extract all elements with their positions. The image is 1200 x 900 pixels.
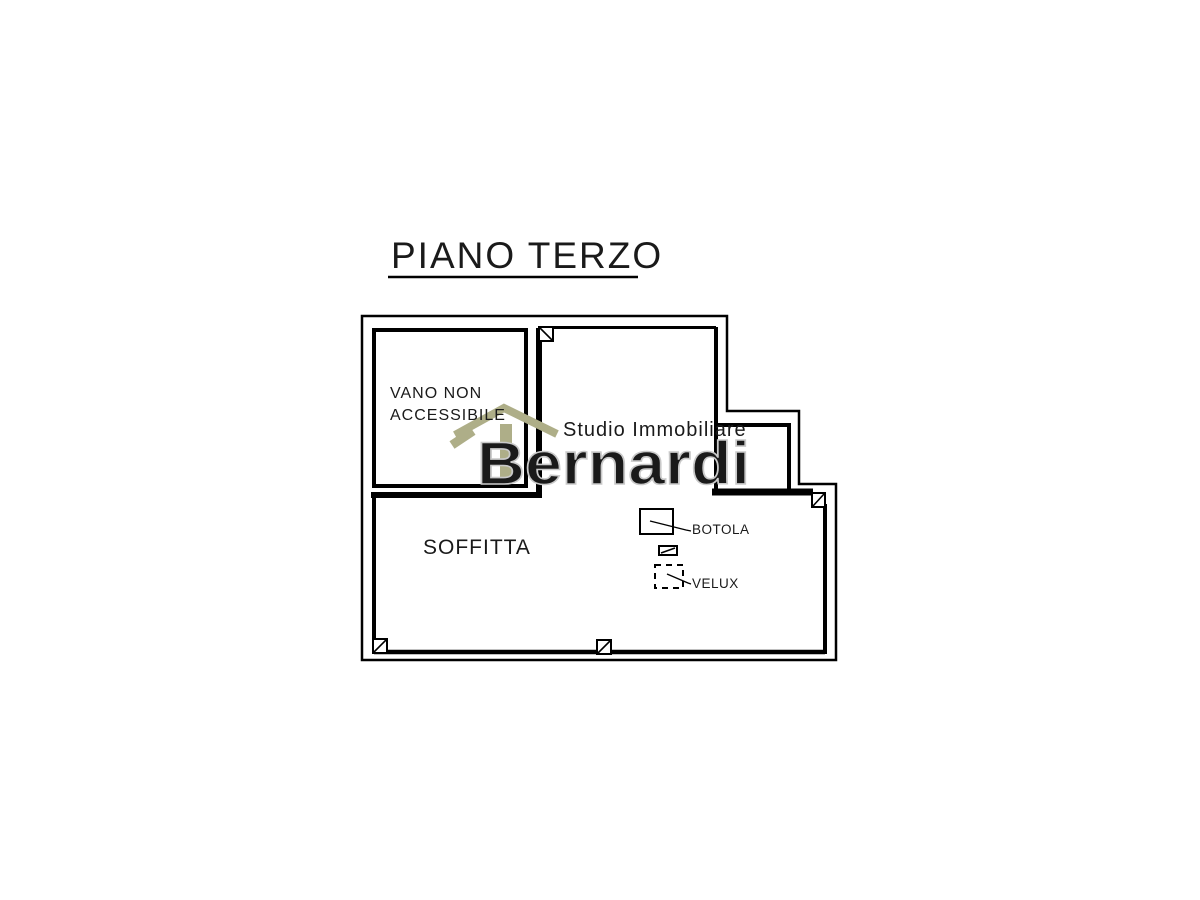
vano-label-line1: VANO NON bbox=[390, 385, 482, 402]
velux-leader-line bbox=[667, 574, 691, 584]
botola-hatch-icon bbox=[640, 509, 673, 534]
pillar-marker-icon bbox=[539, 327, 553, 341]
pillar-marker-icon bbox=[373, 639, 387, 653]
velux-label: VELUX bbox=[692, 576, 739, 591]
watermark-brand-text: Bernardi bbox=[477, 430, 750, 497]
soffitta-label: SOFFITTA bbox=[423, 536, 531, 559]
botola-symbol: BOTOLA bbox=[640, 509, 750, 537]
floorplan-page: PIANO TERZO bbox=[0, 0, 1200, 900]
botola-leader-line bbox=[650, 521, 691, 531]
pillar-marker-icon bbox=[597, 640, 611, 654]
velux-symbol: VELUX bbox=[655, 565, 739, 591]
botola-label: BOTOLA bbox=[692, 522, 750, 537]
velux-window-icon bbox=[655, 565, 683, 588]
plan-title: PIANO TERZO bbox=[391, 235, 663, 276]
vent-symbol-icon bbox=[659, 546, 677, 555]
vano-label-line2: ACCESSIBILE bbox=[390, 407, 506, 424]
pillar-marker-icon bbox=[812, 493, 825, 507]
floorplan-drawing: PIANO TERZO bbox=[0, 0, 1200, 900]
